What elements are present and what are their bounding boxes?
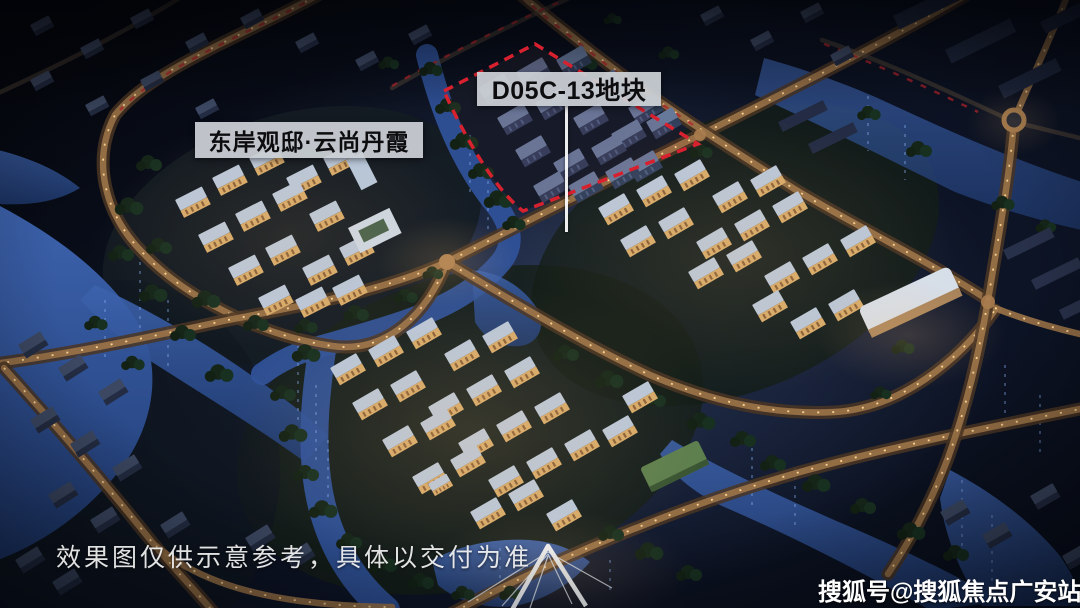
plot-label-text: D05C-13地块 (492, 71, 647, 107)
watermark-text: 搜狐号@搜狐焦点广安站 (818, 572, 1080, 607)
project-name-label: 东岸观邸·云尚丹霞 (195, 122, 423, 158)
project-name-text: 东岸观邸·云尚丹霞 (209, 123, 410, 157)
plot-label: D05C-13地块 (477, 72, 661, 106)
disclaimer-text: 效果图仅供示意参考，具体以交付为准 (56, 538, 532, 574)
aerial-night-render: D05C-13地块 东岸观邸·云尚丹霞 效果图仅供示意参考，具体以交付为准 搜狐… (0, 0, 1080, 608)
leader-line (565, 106, 568, 232)
